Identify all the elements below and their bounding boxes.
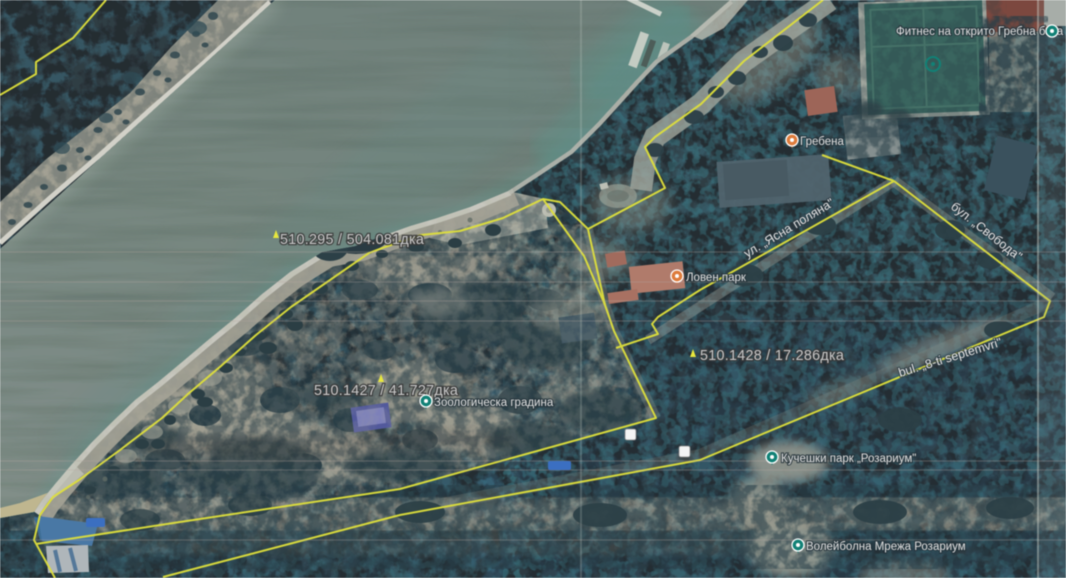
svg-text:Ловен парк: Ловен парк <box>686 272 747 284</box>
svg-text:Волейболна Мрежа Розариум: Волейболна Мрежа Розариум <box>806 541 966 553</box>
svg-text:Фитнес на открито Гребна база: Фитнес на открито Гребна база <box>896 26 1064 38</box>
svg-text:Кучешки парк „Розариум": Кучешки парк „Розариум" <box>781 453 916 465</box>
svg-text:Зоологическа градина: Зоологическа градина <box>434 397 554 409</box>
svg-text:510.1428 / 17.286дка: 510.1428 / 17.286дка <box>700 348 844 364</box>
svg-text:Гребена: Гребена <box>800 136 844 148</box>
svg-text:510.295 / 504.081дка: 510.295 / 504.081дка <box>280 232 424 248</box>
